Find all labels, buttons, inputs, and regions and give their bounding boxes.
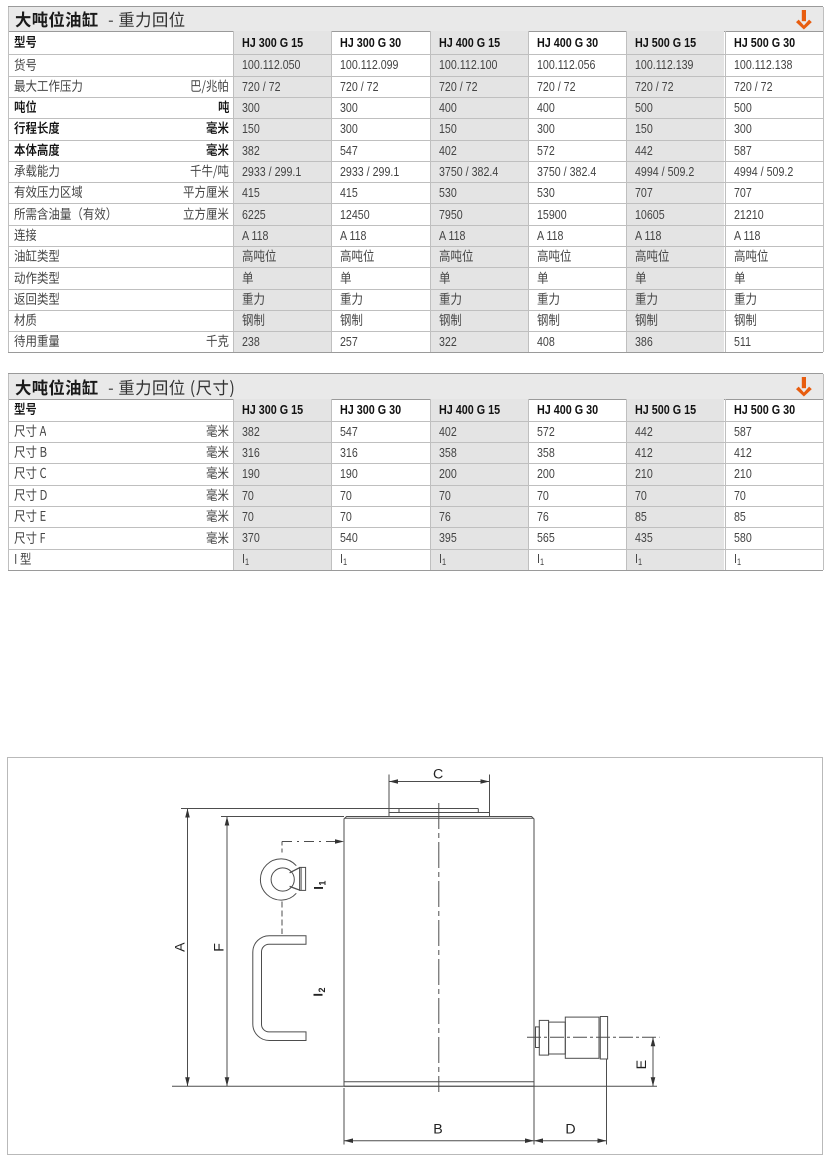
svg-text:D: D	[565, 1122, 575, 1138]
svg-text:I1: I1	[311, 881, 328, 890]
svg-text:E: E	[634, 1060, 650, 1069]
svg-text:B: B	[433, 1122, 442, 1138]
svg-text:I2: I2	[310, 987, 327, 996]
svg-text:C: C	[433, 767, 443, 783]
svg-text:F: F	[212, 943, 228, 952]
svg-text:A: A	[173, 942, 189, 952]
